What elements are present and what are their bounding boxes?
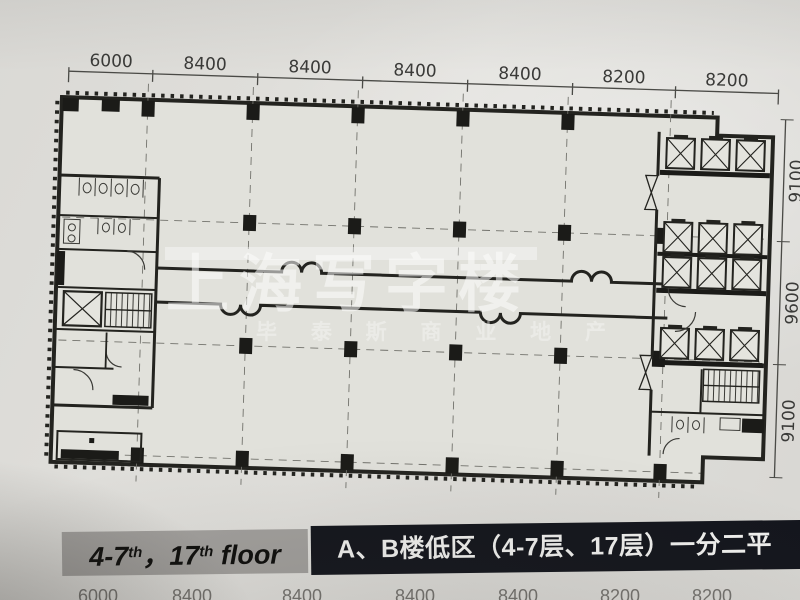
dim-label: 8400: [288, 57, 332, 78]
watermark-tagline: 毕 泰 斯 商 业 地 产: [256, 316, 620, 346]
dim-label: 8400: [172, 586, 212, 600]
dim-label: 9100: [779, 399, 800, 443]
stair-icon: [703, 369, 760, 403]
bottom-partial-dimensions: 6000 8400 8400 8400 8400 8200 8200: [0, 586, 800, 600]
caption-bar: 4-7th，17th floor A、B楼低区（4-7层、17层）一分二平: [62, 520, 800, 578]
right-dimension-line: 9100 9600 9100: [769, 120, 800, 479]
floor-range: 4-7: [89, 541, 128, 571]
dim-label: 8200: [692, 586, 732, 600]
dim-label: 8400: [393, 60, 437, 81]
floor-label-en: 4-7th，17th floor: [62, 529, 309, 576]
floor-plan-photo: 6000 8400 8400 8400 8400 8200 8200 9100: [0, 0, 800, 600]
dim-label: 6000: [78, 586, 118, 600]
dim-label: 8200: [705, 70, 749, 91]
dim-label: 6000: [89, 51, 133, 72]
floor-17: 17: [169, 540, 199, 570]
dim-label: 8200: [602, 67, 646, 88]
floor-word: floor: [221, 539, 281, 570]
ordinal: th: [128, 545, 142, 561]
dim-label: 8400: [498, 586, 538, 600]
watermark-brand: 上海写字楼: [166, 252, 531, 318]
elevator-shaft-icon: [63, 291, 102, 326]
dim-label: 8400: [183, 54, 227, 75]
ordinal: th: [199, 544, 213, 560]
top-dimension-line: 6000 8400 8400 8400 8400 8200 8200: [68, 50, 779, 104]
caption-title-cn: A、B楼低区（4-7层、17层）一分二平: [311, 520, 800, 575]
dim-label: 9600: [782, 281, 800, 325]
stair-icon: [105, 292, 152, 327]
dim-label: 8400: [498, 64, 542, 85]
dim-label: 8400: [395, 586, 435, 600]
separator: ，: [142, 541, 169, 571]
dim-label: 8400: [282, 586, 322, 600]
dim-label: 9100: [786, 159, 800, 203]
dim-label: 8200: [600, 586, 640, 600]
